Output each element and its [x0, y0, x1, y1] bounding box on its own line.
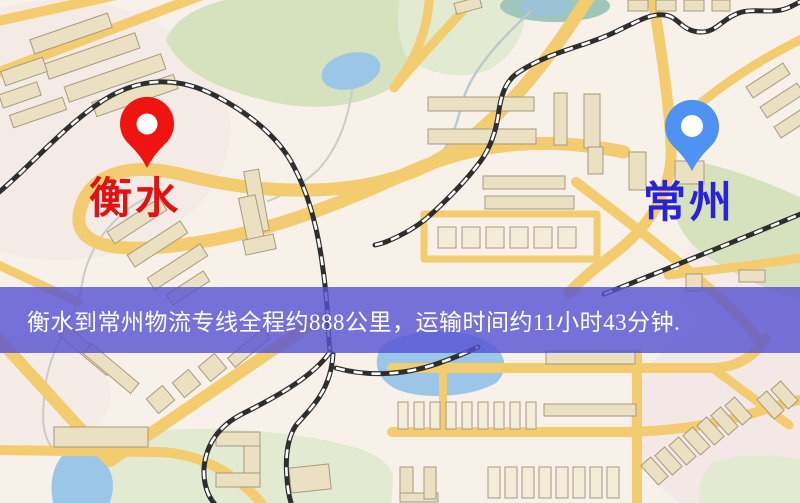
route-info-text: 衡水到常州物流专线全程约888公里，运输时间约11小时43分钟.: [27, 303, 680, 337]
route-info-banner: 衡水到常州物流专线全程约888公里，运输时间约11小时43分钟.: [0, 287, 800, 353]
map-artwork: [0, 0, 800, 503]
destination-label: 常州: [604, 182, 774, 225]
origin-label: 衡水: [50, 178, 220, 221]
map-viewport[interactable]: 衡水 常州 衡水到常州物流专线全程约888公里，运输时间约11小时43分钟.: [0, 0, 800, 503]
